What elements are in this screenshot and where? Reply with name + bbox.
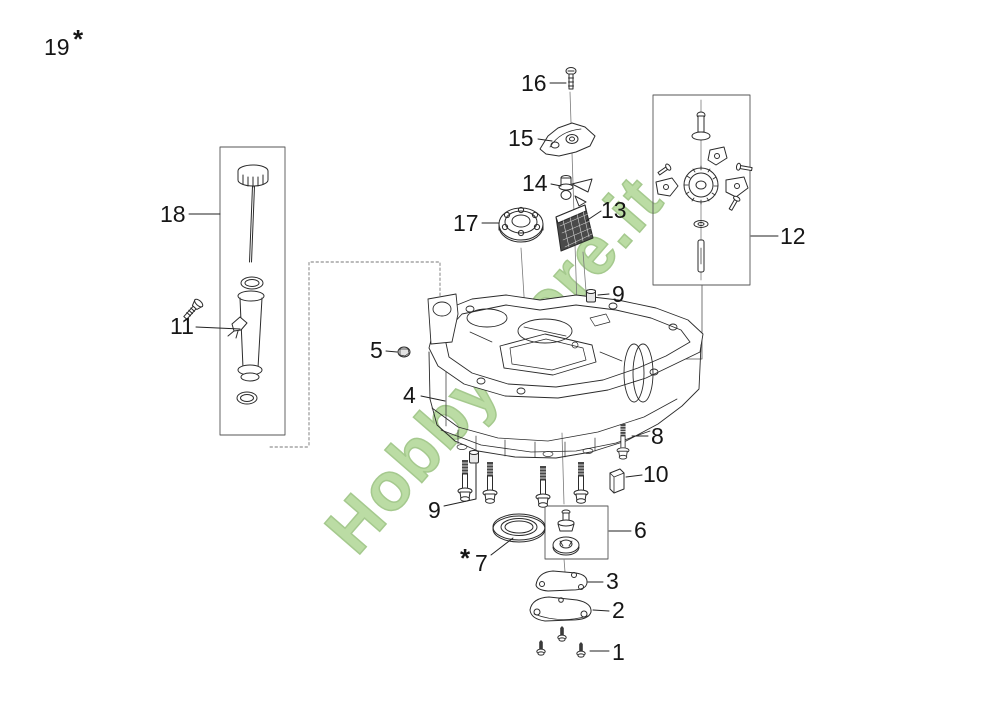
part-label-18: 18	[160, 203, 186, 226]
part-label-13: 13	[601, 199, 627, 222]
parts-diagram-page: HobbyStore.it	[0, 0, 1000, 708]
sump-bolt	[574, 462, 588, 503]
part-label-9-top: 9	[612, 283, 625, 306]
part-label-17: 17	[453, 212, 479, 235]
part-7-oil-seal	[493, 514, 545, 542]
part-8-bolt	[617, 424, 629, 459]
part-label-3: 3	[606, 570, 619, 593]
part-17-ball-bearing	[499, 207, 543, 242]
part-label-7: 7	[475, 552, 488, 575]
part-label-1: 1	[612, 641, 625, 664]
part-label-12: 12	[780, 225, 806, 248]
sump-bolt	[536, 466, 550, 507]
part-label-5: 5	[370, 339, 383, 362]
part-label-10: 10	[643, 463, 669, 486]
part-label-9-bottom: 9	[428, 499, 441, 522]
part-2-cover	[530, 597, 591, 621]
part-label-16: 16	[521, 72, 547, 95]
part-9-dowel-pin-bottom	[470, 451, 479, 464]
sump-bolt	[483, 462, 497, 503]
part-label-19: 19	[44, 36, 70, 59]
exploded-view-drawing	[0, 0, 1000, 708]
part-label-11: 11	[170, 315, 194, 338]
part-9-dowel-pin-top	[587, 290, 596, 303]
part-label-15: 15	[508, 127, 534, 150]
part-label-8: 8	[651, 425, 664, 448]
part-1-screw	[537, 640, 545, 655]
part-13-oil-screen	[556, 205, 593, 251]
part-label-6: 6	[634, 519, 647, 542]
part-3-plate	[536, 571, 587, 591]
part-1-screw	[558, 626, 566, 641]
part-label-14: 14	[522, 172, 548, 195]
part-1-screw	[577, 642, 585, 657]
sump-bolt	[458, 460, 472, 501]
part-6-pump-assembly	[553, 510, 579, 555]
part-16-screw	[566, 68, 576, 90]
part-18-dipstick-assembly	[228, 165, 268, 404]
part-5-plug	[398, 347, 410, 357]
part-label-7-asterisk: *	[460, 545, 470, 571]
part-label-2: 2	[612, 599, 625, 622]
part-14-governor-shaft	[559, 176, 592, 207]
part-label-19-asterisk: *	[73, 26, 83, 52]
mounting-reference-dashed-box	[270, 262, 440, 447]
part-10-key	[610, 469, 624, 493]
part-label-4: 4	[403, 384, 416, 407]
part-15-bracket	[540, 123, 595, 156]
part-12-governor-assembly	[656, 112, 752, 272]
